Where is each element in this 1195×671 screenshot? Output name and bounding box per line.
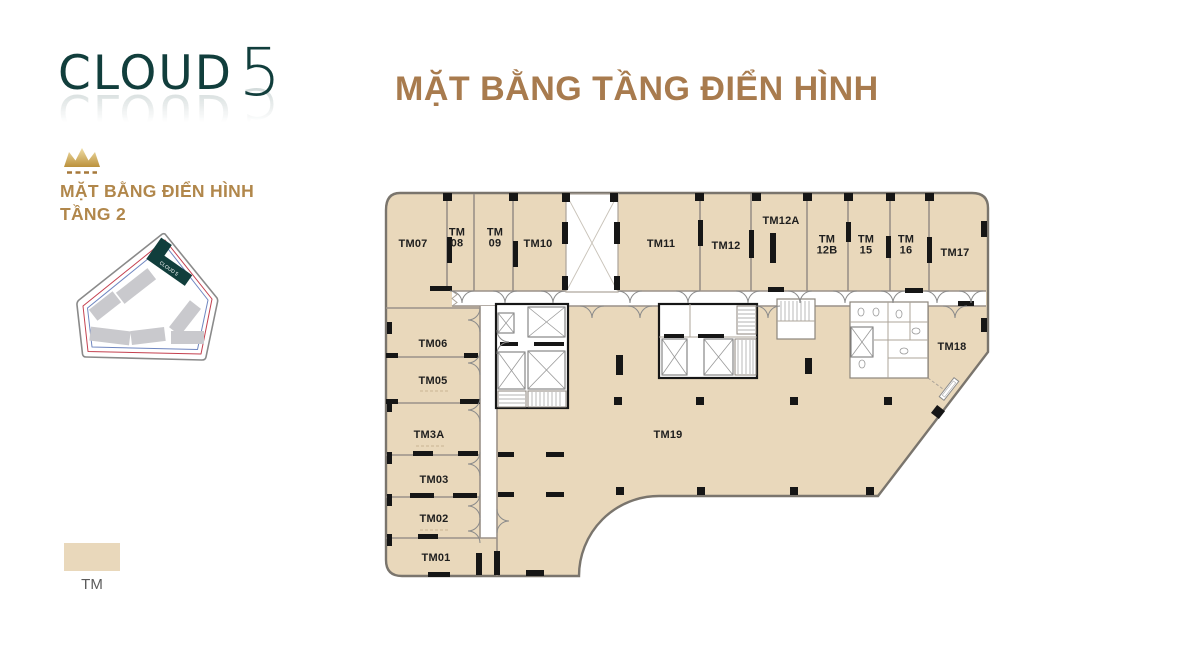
cloud5-logo: CLOUD5 CLOUD5 (58, 34, 338, 150)
unit-label-TM12A: TM12A (762, 215, 799, 227)
unit-label-TM06: TM06 (419, 338, 448, 350)
sidebar-plan-label: MẶT BẰNG ĐIỂN HÌNH TẦNG 2 (60, 180, 254, 226)
restroom-core (850, 302, 928, 378)
building-outline (386, 193, 988, 576)
unit-label-TM19: TM19 (654, 429, 683, 441)
void-shaft (566, 194, 618, 292)
page: CLOUD5 CLOUD5 MẶT BẰNG ĐIỂN HÌNH TẦNG 2 (0, 0, 1195, 671)
legend-swatch-tm (64, 543, 120, 571)
unit-label-TM08: TM08 (449, 227, 465, 250)
logo-reflection: CLOUD5 (58, 84, 338, 150)
unit-label-TM07: TM07 (399, 238, 428, 250)
unit-label-TM09: TM09 (487, 227, 503, 250)
crown-icon (60, 146, 104, 180)
plan-label-line2: TẦNG 2 (60, 203, 254, 226)
unit-label-TM10: TM10 (524, 238, 553, 250)
stair-core (777, 299, 815, 339)
legend: TM (64, 543, 120, 593)
unit-label-TM03: TM03 (420, 474, 449, 486)
unit-label-TM17: TM17 (941, 247, 970, 259)
unit-label-TM01: TM01 (422, 552, 451, 564)
unit-label-TM15: TM15 (858, 234, 874, 257)
unit-label-TM11: TM11 (647, 238, 675, 250)
site-map: CLOUD 5 (72, 230, 226, 374)
unit-label-TM16: TM16 (898, 234, 914, 257)
legend-label: TM (64, 576, 120, 593)
unit-label-TM3A: TM3A (414, 429, 445, 441)
unit-label-TM18: TM18 (938, 341, 967, 353)
elevator-core-left (496, 304, 568, 408)
elevator-core-middle (659, 304, 757, 378)
corridor-vertical (480, 306, 497, 538)
page-title: MẶT BẰNG TẦNG ĐIỂN HÌNH (395, 70, 879, 109)
unit-label-TM12: TM12 (712, 240, 741, 252)
unit-label-TM12B: TM12B (817, 234, 838, 257)
unit-label-TM02: TM02 (420, 513, 449, 525)
plan-label-line1: MẶT BẰNG ĐIỂN HÌNH (60, 180, 254, 203)
floorplan-svg: TM07TM08TM09TM10TM11TM12TM12ATM12BTM15TM… (378, 186, 998, 598)
unit-label-TM05: TM05 (419, 375, 448, 387)
